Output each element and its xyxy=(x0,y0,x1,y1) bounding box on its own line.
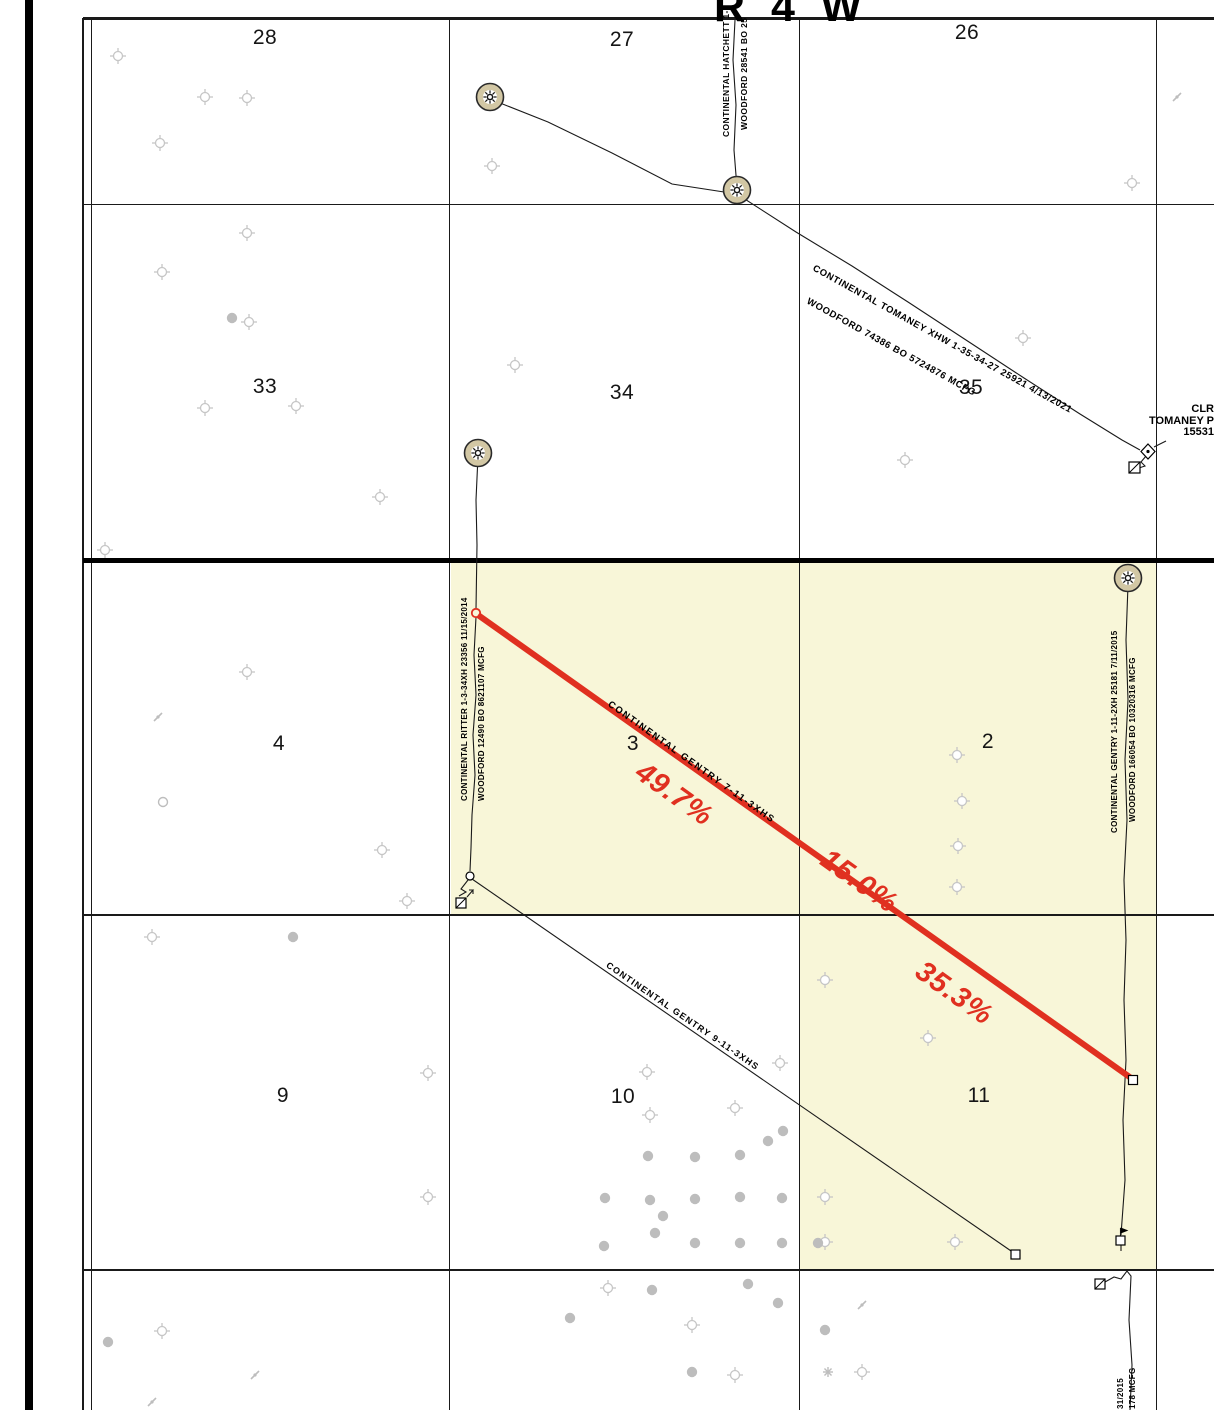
star-well-icon xyxy=(823,1367,833,1377)
plat-map: R 4 W 28272633343543291011 CONTINENTAL H… xyxy=(0,0,1214,1410)
ritter-surface-path xyxy=(476,456,478,609)
section-number-label: 33 xyxy=(253,375,277,399)
gas-well-icon xyxy=(477,84,504,111)
ritter-lateral-path xyxy=(470,617,476,871)
staked-location-icon xyxy=(954,793,970,809)
section-number-label: 34 xyxy=(610,381,634,405)
section-number-label: 2 xyxy=(982,730,994,754)
staked-location-icon xyxy=(817,972,833,988)
gentry-1-11-well-label: CONTINENTAL GENTRY 1-11-2XH 25181 7/11/2… xyxy=(1110,631,1119,833)
gas-well-icon xyxy=(1115,565,1142,592)
well-dot-icon xyxy=(735,1238,745,1248)
well-dot-icon xyxy=(600,1193,610,1203)
gentry-1-11-lateral-path xyxy=(1121,585,1128,1235)
ritter-well-label: CONTINENTAL RITTER 1-3-34XH 23356 11/15/… xyxy=(460,597,469,801)
lateral-start-circle xyxy=(472,609,480,617)
staked-location-icon xyxy=(420,1065,436,1081)
well-dot-icon xyxy=(777,1238,787,1248)
well-dot-icon xyxy=(288,932,298,942)
section-number-label: 4 xyxy=(273,732,285,756)
gentry-7-11-lateral-red xyxy=(478,615,1131,1078)
well-dot-icon xyxy=(735,1150,745,1160)
staked-location-icon xyxy=(144,929,160,945)
staked-location-icon xyxy=(372,489,388,505)
staked-location-icon xyxy=(241,314,257,330)
ritter-tail-path xyxy=(459,880,468,896)
well-dot-icon xyxy=(643,1151,653,1161)
staked-location-icon xyxy=(920,1030,936,1046)
staked-location-icon xyxy=(239,664,255,680)
staked-location-icon xyxy=(484,158,500,174)
well-dot-icon xyxy=(813,1238,823,1248)
hatchett-well-label: CONTINENTAL HATCHETT 1-2 xyxy=(721,5,731,137)
staked-location-icon xyxy=(154,1323,170,1339)
section-number-label: 3 xyxy=(627,732,639,756)
open-well-circle xyxy=(466,872,474,880)
staked-location-icon xyxy=(950,838,966,854)
well-dot-icon xyxy=(690,1194,700,1204)
well-dot-icon xyxy=(743,1279,753,1289)
hatchett-well-label: WOODFORD 28541 BO 25 xyxy=(739,18,749,130)
abandoned-well-icon xyxy=(148,1398,156,1406)
abandoned-well-icon xyxy=(858,1301,866,1309)
well-dot-icon xyxy=(103,1337,113,1347)
tomaney-p-label: CLR TOMANEY P 15531 xyxy=(1148,404,1214,439)
staked-location-icon xyxy=(727,1367,743,1383)
staked-location-icon xyxy=(639,1064,655,1080)
staked-location-icon xyxy=(1015,330,1031,346)
section-number-label: 10 xyxy=(611,1085,635,1109)
staked-location-icon xyxy=(949,879,965,895)
staked-location-icon xyxy=(642,1107,658,1123)
abandoned-well-icon xyxy=(154,713,162,721)
section-number-label: 27 xyxy=(610,28,634,52)
staked-location-icon xyxy=(239,90,255,106)
well-dot-icon xyxy=(690,1152,700,1162)
staked-location-icon xyxy=(1124,175,1140,191)
staked-location-icon xyxy=(772,1055,788,1071)
well-dot-icon xyxy=(763,1136,773,1146)
staked-location-icon xyxy=(947,1234,963,1250)
staked-location-icon xyxy=(110,48,126,64)
staked-location-icon xyxy=(854,1364,870,1380)
abandoned-well-icon xyxy=(1173,93,1181,101)
staked-location-icon xyxy=(420,1189,436,1205)
staked-location-icon xyxy=(197,400,213,416)
staked-location-icon xyxy=(817,1189,833,1205)
section-number-label: 26 xyxy=(955,21,979,45)
well-end-square-icon xyxy=(1129,1076,1138,1085)
flag-pennant xyxy=(1121,1228,1128,1233)
ritter-arrow xyxy=(467,890,473,897)
well-dot-icon xyxy=(735,1192,745,1202)
section-number-label: 11 xyxy=(968,1084,991,1108)
staked-location-icon xyxy=(399,893,415,909)
well-dot-icon xyxy=(227,313,237,323)
open-well-icon xyxy=(159,798,168,807)
section-number-label: 28 xyxy=(253,26,277,50)
well-dot-icon xyxy=(820,1325,830,1335)
section-number-label: 9 xyxy=(277,1084,289,1108)
well-dot-icon xyxy=(777,1193,787,1203)
bottom-partial-label: 31/2015 xyxy=(1116,1378,1125,1409)
abandoned-well-icon xyxy=(251,1371,259,1379)
well-dot-icon xyxy=(658,1211,668,1221)
tomaney-tick xyxy=(1154,441,1166,447)
flag-square-icon xyxy=(1116,1236,1125,1245)
well-dot-icon xyxy=(565,1313,575,1323)
staked-location-icon xyxy=(684,1317,700,1333)
staked-location-icon xyxy=(600,1280,616,1296)
well-dot-icon xyxy=(647,1285,657,1295)
gentry-1-11-well-label: WOODFORD 166054 BO 10320316 MCFG xyxy=(1128,657,1137,822)
well-dot-icon xyxy=(645,1195,655,1205)
staked-location-icon xyxy=(152,135,168,151)
well-dot-icon xyxy=(773,1298,783,1308)
gas-well-icon xyxy=(724,177,751,204)
staked-location-icon xyxy=(507,357,523,373)
well-dot-icon xyxy=(778,1126,788,1136)
staked-location-icon xyxy=(374,842,390,858)
staked-location-icon xyxy=(97,542,113,558)
range-title: R 4 W xyxy=(714,0,868,32)
well-dot-icon xyxy=(690,1238,700,1248)
well-dot-icon xyxy=(687,1367,697,1377)
well-dot-icon xyxy=(599,1241,609,1251)
well-dot-icon xyxy=(650,1228,660,1238)
staked-location-icon xyxy=(897,452,913,468)
staked-location-icon xyxy=(727,1100,743,1116)
staked-location-icon xyxy=(288,398,304,414)
gas-well-icon xyxy=(465,440,492,467)
staked-location-icon xyxy=(154,264,170,280)
ritter-well-label: WOODFORD 12490 BO 8621107 MCFG xyxy=(477,646,486,801)
tomaney-p-line: CLR xyxy=(1148,404,1214,416)
staked-location-icon xyxy=(949,747,965,763)
staked-location-icon xyxy=(197,89,213,105)
staked-location-icon xyxy=(239,225,255,241)
hatchett-surface-path xyxy=(733,20,737,188)
tomaney-p-line: 15531 xyxy=(1148,427,1214,439)
bottom-partial-label: 178 MCFG xyxy=(1128,1367,1137,1409)
well-end-square-icon xyxy=(1011,1250,1020,1259)
